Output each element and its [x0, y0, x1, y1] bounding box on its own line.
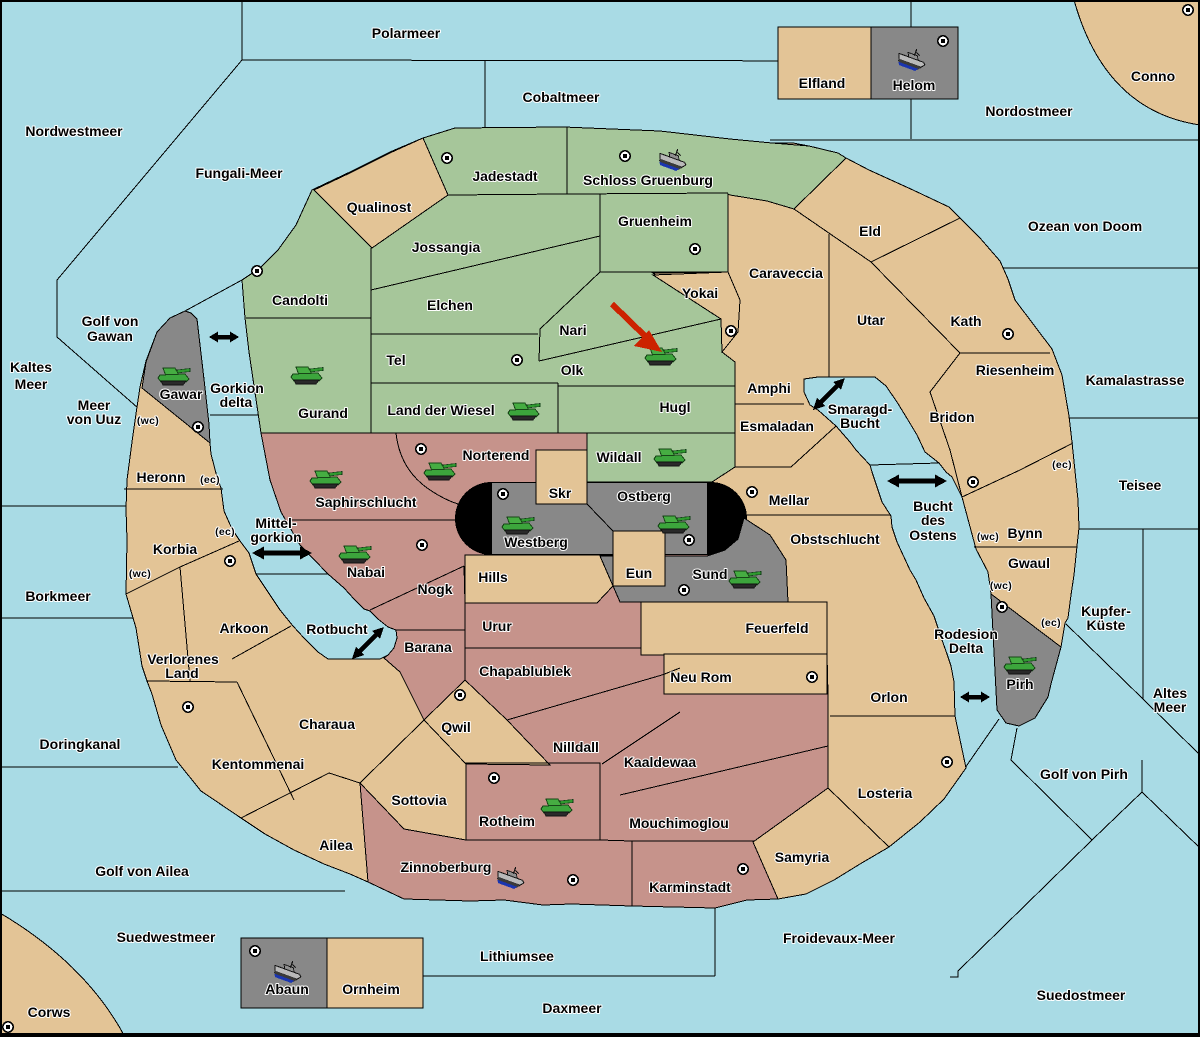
svg-text:Saphirschlucht: Saphirschlucht: [315, 494, 416, 510]
svg-text:Abaun: Abaun: [265, 981, 309, 997]
svg-text:Küste: Küste: [1087, 617, 1126, 633]
svg-text:Hugl: Hugl: [659, 399, 690, 415]
svg-text:Neu Rom: Neu Rom: [670, 669, 731, 685]
svg-text:(wc): (wc): [129, 568, 151, 580]
svg-text:Gawar: Gawar: [160, 386, 203, 402]
svg-text:Meer: Meer: [1154, 699, 1187, 715]
svg-text:gorkion: gorkion: [250, 529, 301, 545]
svg-text:Ailea: Ailea: [319, 837, 353, 853]
svg-text:Rotheim: Rotheim: [479, 813, 535, 829]
svg-text:Ostens: Ostens: [909, 527, 957, 543]
svg-text:Golf von Pirh: Golf von Pirh: [1040, 766, 1128, 782]
svg-text:(wc): (wc): [977, 531, 999, 543]
svg-text:Obstschlucht: Obstschlucht: [790, 531, 880, 547]
svg-text:(wc): (wc): [990, 580, 1012, 592]
svg-text:(ec): (ec): [1052, 459, 1072, 471]
svg-text:Kentommenai: Kentommenai: [212, 756, 305, 772]
svg-text:Esmaladan: Esmaladan: [740, 418, 814, 434]
svg-text:Losteria: Losteria: [858, 785, 913, 801]
svg-text:Qualinost: Qualinost: [347, 199, 412, 215]
svg-text:Urur: Urur: [482, 618, 512, 634]
svg-text:Froidevaux-Meer: Froidevaux-Meer: [783, 930, 896, 946]
svg-text:Arkoon: Arkoon: [220, 620, 269, 636]
svg-text:Sund: Sund: [693, 566, 728, 582]
svg-text:Hills: Hills: [478, 569, 508, 585]
svg-text:Fungali-Meer: Fungali-Meer: [195, 165, 283, 181]
svg-text:Ozean von Doom: Ozean von Doom: [1028, 218, 1142, 234]
svg-text:Barana: Barana: [404, 639, 452, 655]
svg-text:Bucht: Bucht: [840, 415, 880, 431]
svg-text:Bynn: Bynn: [1008, 525, 1043, 541]
svg-text:Gawan: Gawan: [87, 328, 133, 344]
svg-text:Norterend: Norterend: [463, 447, 530, 463]
svg-text:Doringkanal: Doringkanal: [40, 736, 121, 752]
svg-text:Ostberg: Ostberg: [617, 488, 671, 504]
svg-text:Daxmeer: Daxmeer: [542, 1000, 602, 1016]
svg-text:Nordwestmeer: Nordwestmeer: [25, 123, 123, 139]
svg-text:Kaaldewaa: Kaaldewaa: [624, 754, 697, 770]
svg-text:Land der Wiesel: Land der Wiesel: [387, 402, 494, 418]
svg-text:Nordostmeer: Nordostmeer: [985, 103, 1073, 119]
svg-text:(wc): (wc): [137, 415, 159, 427]
svg-text:Skr: Skr: [549, 485, 572, 501]
svg-text:Kath: Kath: [950, 313, 981, 329]
svg-text:Jossangia: Jossangia: [412, 239, 481, 255]
svg-text:Pirh: Pirh: [1006, 676, 1033, 692]
svg-text:Mouchimoglou: Mouchimoglou: [629, 815, 729, 831]
svg-text:Nilldall: Nilldall: [553, 739, 599, 755]
svg-text:Gwaul: Gwaul: [1008, 555, 1050, 571]
svg-text:Riesenheim: Riesenheim: [976, 362, 1055, 378]
svg-text:Elchen: Elchen: [427, 297, 473, 313]
svg-text:Amphi: Amphi: [747, 380, 791, 396]
svg-text:(ec): (ec): [1041, 617, 1061, 629]
svg-text:Kamalastrasse: Kamalastrasse: [1086, 372, 1185, 388]
svg-text:Ornheim: Ornheim: [342, 981, 400, 997]
svg-text:des: des: [921, 512, 945, 528]
svg-text:Charaua: Charaua: [299, 716, 355, 732]
svg-text:Tel: Tel: [386, 352, 405, 368]
svg-text:Delta: Delta: [949, 640, 983, 656]
svg-text:(ec): (ec): [215, 526, 235, 538]
svg-text:Samyria: Samyria: [775, 849, 830, 865]
svg-text:Polarmeer: Polarmeer: [372, 25, 441, 41]
svg-text:Karminstadt: Karminstadt: [649, 879, 731, 895]
svg-text:Zinnoberburg: Zinnoberburg: [401, 859, 492, 875]
svg-text:Jadestadt: Jadestadt: [472, 168, 538, 184]
svg-text:Suedwestmeer: Suedwestmeer: [117, 929, 216, 945]
svg-text:Qwil: Qwil: [441, 719, 471, 735]
svg-text:Eld: Eld: [859, 223, 881, 239]
svg-text:Wildall: Wildall: [597, 449, 642, 465]
svg-text:Chapablublek: Chapablublek: [479, 663, 571, 679]
svg-text:Gruenheim: Gruenheim: [618, 213, 692, 229]
svg-text:Nabai: Nabai: [347, 564, 385, 580]
svg-text:Suedostmeer: Suedostmeer: [1037, 987, 1126, 1003]
svg-text:Utar: Utar: [857, 312, 886, 328]
svg-text:Yokai: Yokai: [682, 285, 718, 301]
svg-text:Golf von: Golf von: [82, 313, 139, 329]
svg-text:Rotbucht: Rotbucht: [306, 621, 368, 637]
svg-text:Korbia: Korbia: [153, 541, 198, 557]
svg-text:Kaltes: Kaltes: [10, 359, 52, 375]
svg-text:Meer: Meer: [15, 376, 48, 392]
svg-text:Nogk: Nogk: [418, 581, 453, 597]
svg-text:Olk: Olk: [561, 362, 584, 378]
svg-text:Helom: Helom: [893, 77, 936, 93]
svg-text:Golf von Ailea: Golf von Ailea: [95, 863, 189, 879]
svg-text:Caraveccia: Caraveccia: [749, 265, 823, 281]
svg-text:Conno: Conno: [1131, 68, 1175, 84]
svg-text:Land: Land: [165, 665, 198, 681]
svg-text:Teisee: Teisee: [1119, 477, 1162, 493]
svg-text:Bridon: Bridon: [929, 409, 974, 425]
svg-text:Candolti: Candolti: [272, 292, 328, 308]
svg-text:von Uuz: von Uuz: [67, 411, 121, 427]
svg-text:delta: delta: [220, 394, 253, 410]
svg-text:Borkmeer: Borkmeer: [25, 588, 91, 604]
svg-text:Heronn: Heronn: [137, 469, 186, 485]
svg-text:Sottovia: Sottovia: [391, 792, 446, 808]
svg-text:Orlon: Orlon: [870, 689, 907, 705]
svg-text:Corws: Corws: [28, 1004, 71, 1020]
svg-text:Schloss Gruenburg: Schloss Gruenburg: [583, 172, 713, 188]
svg-text:Feuerfeld: Feuerfeld: [745, 620, 808, 636]
svg-text:Nari: Nari: [559, 322, 586, 338]
svg-text:Cobaltmeer: Cobaltmeer: [522, 89, 600, 105]
svg-text:(ec): (ec): [200, 474, 220, 486]
svg-text:Elfland: Elfland: [799, 75, 846, 91]
svg-text:Gurand: Gurand: [298, 405, 348, 421]
svg-text:Eun: Eun: [626, 565, 652, 581]
svg-text:Westberg: Westberg: [504, 534, 568, 550]
svg-text:Mellar: Mellar: [769, 492, 810, 508]
svg-text:Lithiumsee: Lithiumsee: [480, 948, 554, 964]
